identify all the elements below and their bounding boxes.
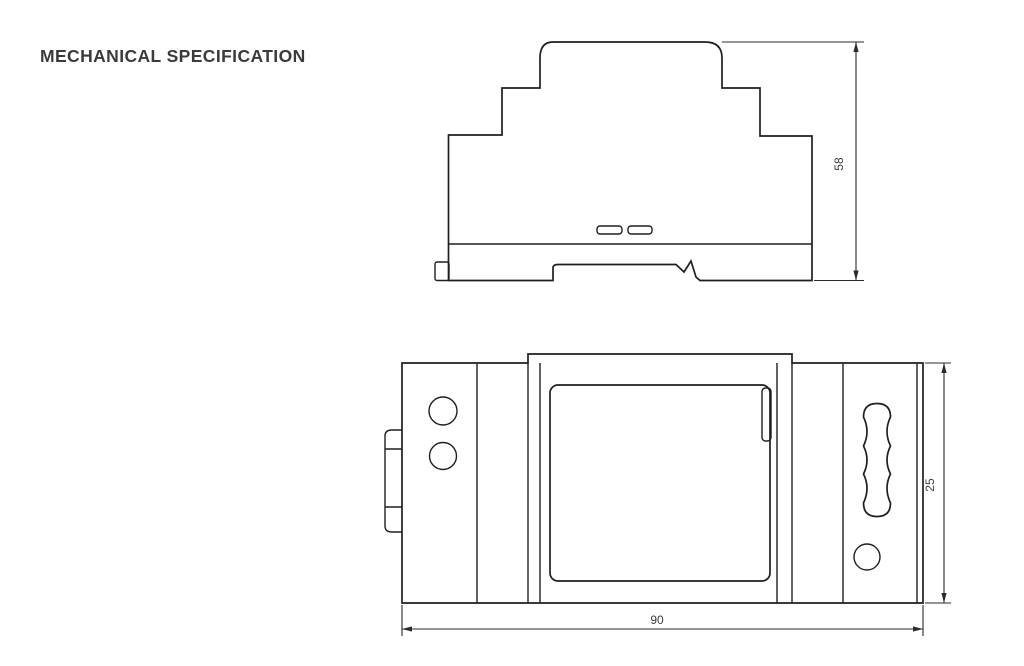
arrowhead-down	[853, 271, 858, 281]
side-view: 58	[435, 42, 864, 281]
display-window	[550, 385, 770, 581]
width-dimension-label: 90	[650, 613, 664, 627]
width-dimension: 90	[402, 605, 923, 636]
depth-dimension: 25	[923, 363, 951, 603]
indicator-hole-top	[429, 397, 457, 425]
din-clip-tab	[435, 262, 449, 281]
front-view-outline	[402, 354, 923, 603]
grip-slot	[864, 404, 891, 517]
screw-hole	[854, 544, 880, 570]
indicator-hole-bottom	[430, 443, 457, 470]
spec-sheet: MECHANICAL SPECIFICATION 58	[0, 0, 1024, 666]
arrowhead-down	[941, 593, 946, 603]
front-view: 90 25	[385, 354, 951, 636]
arrowhead-left	[402, 626, 412, 631]
arrowhead-right	[913, 626, 923, 631]
mechanical-drawing: 58	[0, 0, 1024, 666]
side-view-outline	[449, 42, 813, 281]
vent-slot-right	[628, 226, 652, 234]
front-din-clip	[385, 430, 402, 532]
height-dimension: 58	[722, 42, 864, 281]
vent-slot-left	[597, 226, 622, 234]
depth-dimension-label: 25	[923, 478, 937, 492]
height-dimension-label: 58	[832, 157, 846, 171]
arrowhead-up	[941, 363, 946, 373]
arrowhead-up	[853, 42, 858, 52]
